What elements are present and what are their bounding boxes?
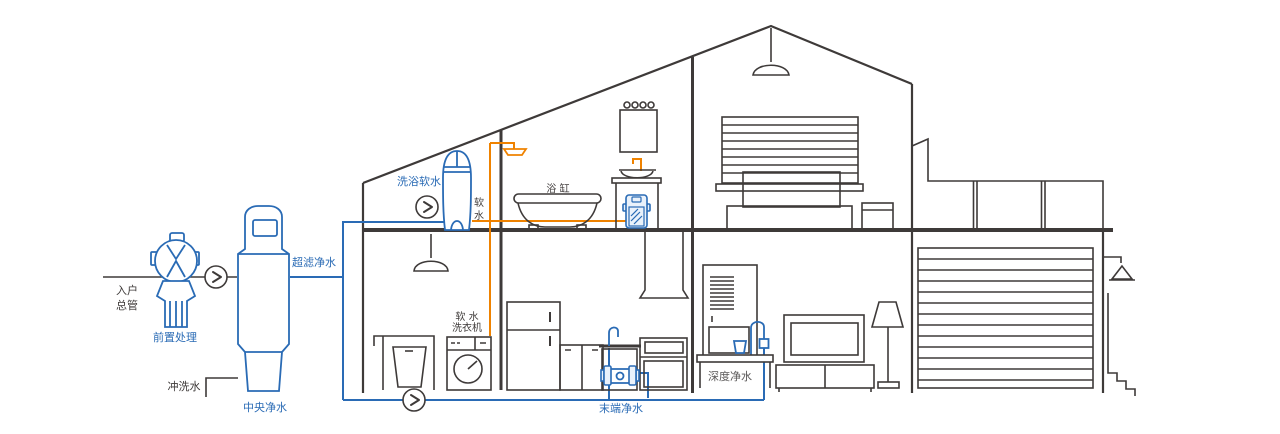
washer-label-line1: 软 水 (455, 310, 478, 323)
deep-purification-label: 深度净水 (708, 369, 752, 383)
mirror (620, 110, 657, 152)
kitchen (507, 232, 688, 390)
floor-lamp (872, 302, 903, 388)
pre-treatment-label: 前置处理 (153, 330, 197, 344)
outdoor-fixture-icon (1103, 257, 1135, 280)
window-sill (716, 184, 863, 191)
soft-water-pipes-orange (472, 143, 641, 336)
under-sink-heater-device (623, 195, 650, 228)
water-cup-icon (734, 341, 746, 353)
ro-filter-device (601, 366, 639, 385)
tv-stand (776, 365, 874, 392)
shower-head-icon (504, 149, 526, 155)
garage (918, 248, 1093, 388)
bathtub (514, 194, 601, 231)
valve-arrow-icon (416, 196, 438, 218)
base-cabinets (560, 345, 603, 390)
attic-room (443, 151, 471, 230)
tv (784, 315, 864, 362)
soft-water-label-char2: 水 (474, 210, 484, 222)
pendant-lamp-icon (414, 261, 448, 271)
bedroom (716, 28, 893, 230)
fridge (507, 302, 560, 390)
valve-arrow-icon (403, 389, 425, 411)
downspout-steps (1108, 293, 1135, 396)
pre-filter-device (151, 233, 199, 327)
flush-drain-pipe (206, 378, 238, 397)
washing-machine (447, 337, 491, 390)
terrace-railing (912, 139, 1103, 231)
sink-faucet-icon (609, 327, 618, 346)
washer-label-line2: 洗衣机 (452, 321, 482, 334)
laundry-basket (393, 347, 426, 387)
water-softener-device (443, 151, 471, 230)
ultrafiltration-label: 超滤净水 (292, 255, 336, 269)
central-purifier-device (238, 206, 289, 391)
inlet-main-label-line2: 总管 (116, 298, 138, 312)
garage-door (918, 248, 1093, 388)
bathroom (514, 102, 661, 231)
terminal-purification-label: 末端净水 (599, 401, 643, 415)
bed-headboard (743, 172, 840, 207)
mirror-lights-icon (624, 102, 654, 108)
bathtub-label: 浴 缸 (546, 182, 569, 195)
flush-water-label: 冲洗水 (168, 379, 201, 393)
bath-soft-water-label: 洗浴软水 (397, 174, 441, 188)
bed-base (727, 206, 852, 230)
central-purification-label: 中央净水 (243, 400, 287, 414)
window-blinds (716, 117, 863, 191)
valve-arrow-icon (205, 266, 227, 288)
water-dispenser-device (703, 265, 769, 358)
soft-water-label-char1: 软 (474, 196, 484, 209)
laundry-table (374, 336, 434, 390)
range-hood (640, 232, 688, 298)
nightstand (862, 203, 893, 230)
house-water-system-diagram: 入户 总管 前置处理 冲洗水 中央净水 超滤净水 洗浴软水 软 水 浴 缸 软 … (0, 0, 1280, 434)
pendant-lamp-icon (753, 65, 789, 75)
inlet-main-label-line1: 入户 (116, 283, 138, 297)
